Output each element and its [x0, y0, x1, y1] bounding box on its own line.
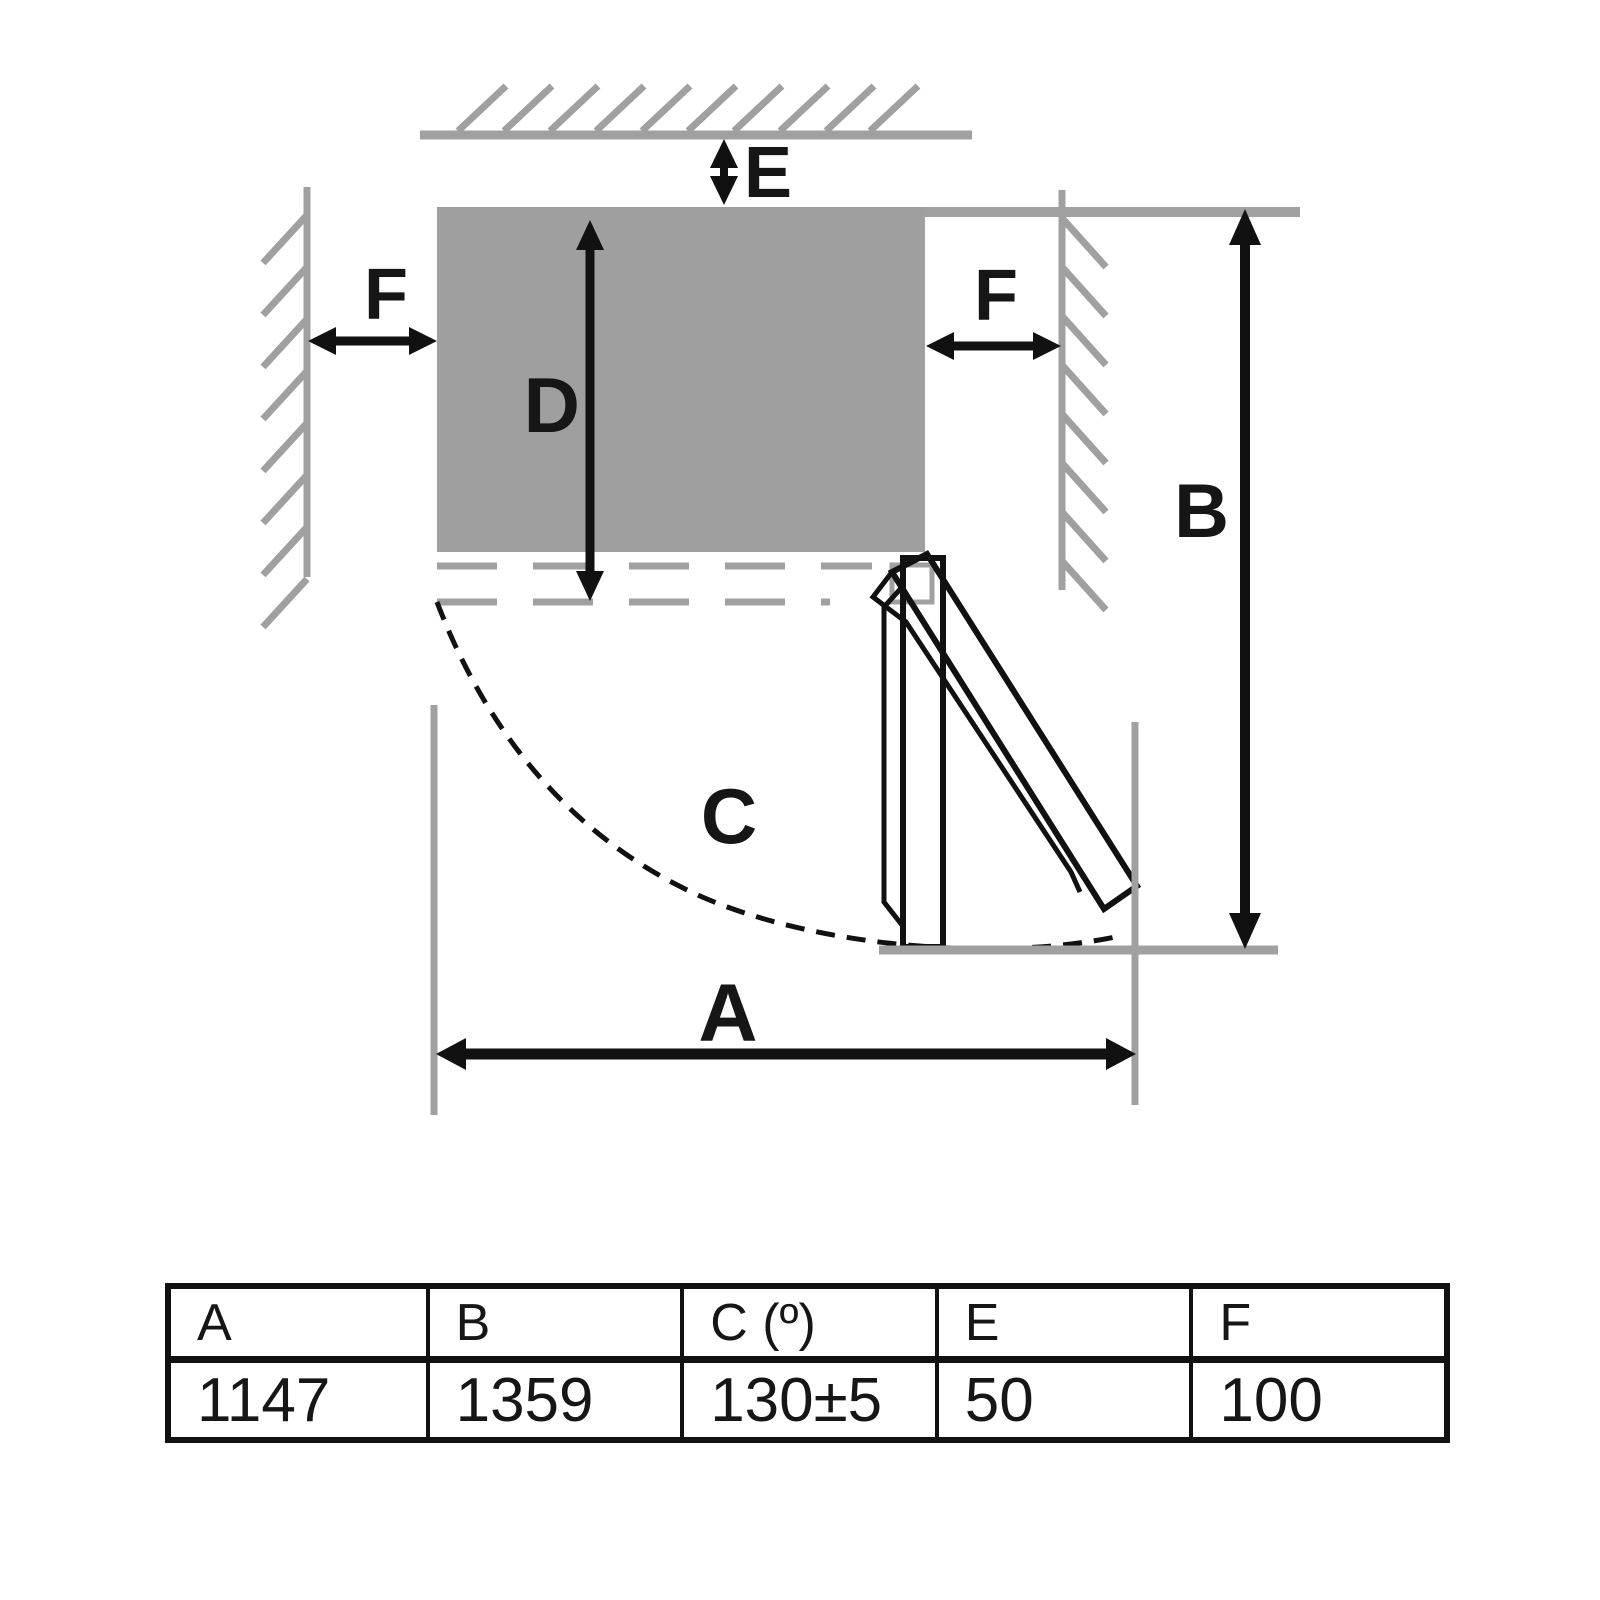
dimension-arrow-e — [710, 139, 738, 205]
table-value-c: 130±5 — [680, 1363, 935, 1437]
label-c: C — [701, 772, 757, 860]
dimension-arrow-a — [436, 1038, 1136, 1070]
label-e: E — [744, 133, 792, 213]
label-d: D — [524, 361, 580, 449]
dimension-arrow-b — [1229, 209, 1261, 949]
door-open-90 — [884, 558, 943, 947]
table-header-f: F — [1189, 1289, 1444, 1363]
ceiling-hatching — [458, 86, 918, 131]
cabinet-rect — [437, 207, 925, 552]
table-header-a: A — [171, 1289, 426, 1363]
label-f-left: F — [364, 255, 408, 335]
door-open-130 — [873, 554, 1137, 909]
dimension-table: A B C (º) E F 1147 1359 130±5 50 100 — [165, 1283, 1450, 1443]
table-value-a: 1147 — [171, 1363, 426, 1437]
table-value-b: 1359 — [426, 1363, 681, 1437]
right-wall-hatching — [1062, 218, 1106, 610]
label-a: A — [698, 968, 757, 1059]
table-value-e: 50 — [935, 1363, 1190, 1437]
table-header-c: C (º) — [680, 1289, 935, 1363]
table-value-f: 100 — [1189, 1363, 1444, 1437]
label-b: B — [1174, 469, 1229, 554]
left-wall-hatching — [263, 215, 307, 627]
installation-clearance-diagram: E F F D B C A A B C (º) E F — [0, 0, 1600, 1600]
dimension-arrow-f-right — [926, 332, 1061, 360]
label-f-right: F — [974, 256, 1018, 336]
table-header-b: B — [426, 1289, 681, 1363]
table-header-e: E — [935, 1289, 1190, 1363]
